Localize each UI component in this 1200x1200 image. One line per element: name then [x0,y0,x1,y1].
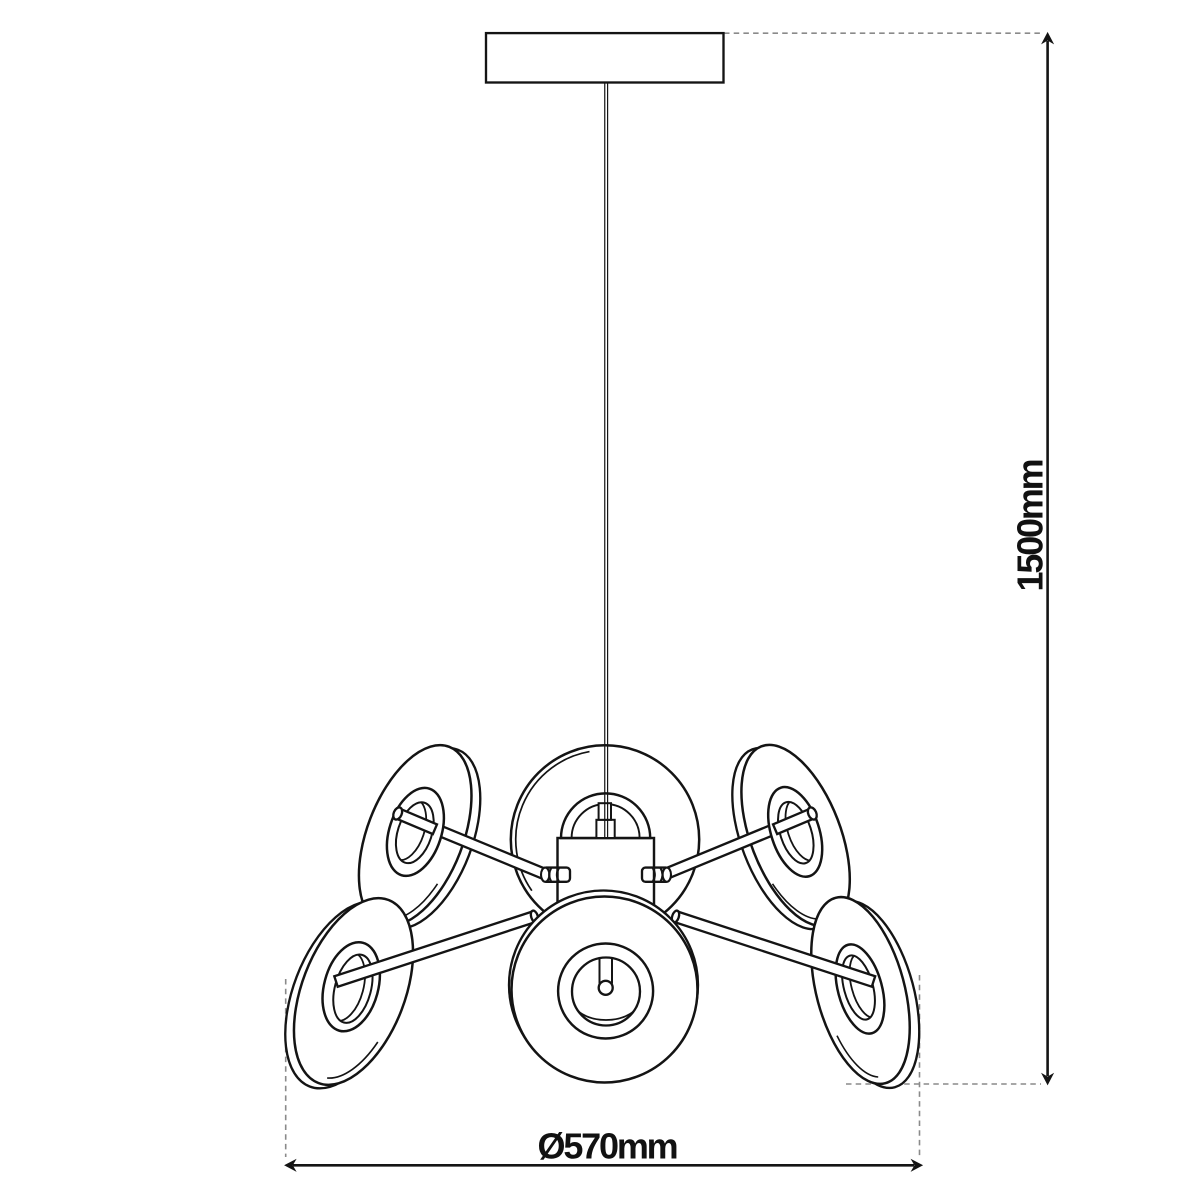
svg-text:1500mm: 1500mm [1010,460,1051,591]
svg-text:Ø570mm: Ø570mm [538,1126,677,1167]
